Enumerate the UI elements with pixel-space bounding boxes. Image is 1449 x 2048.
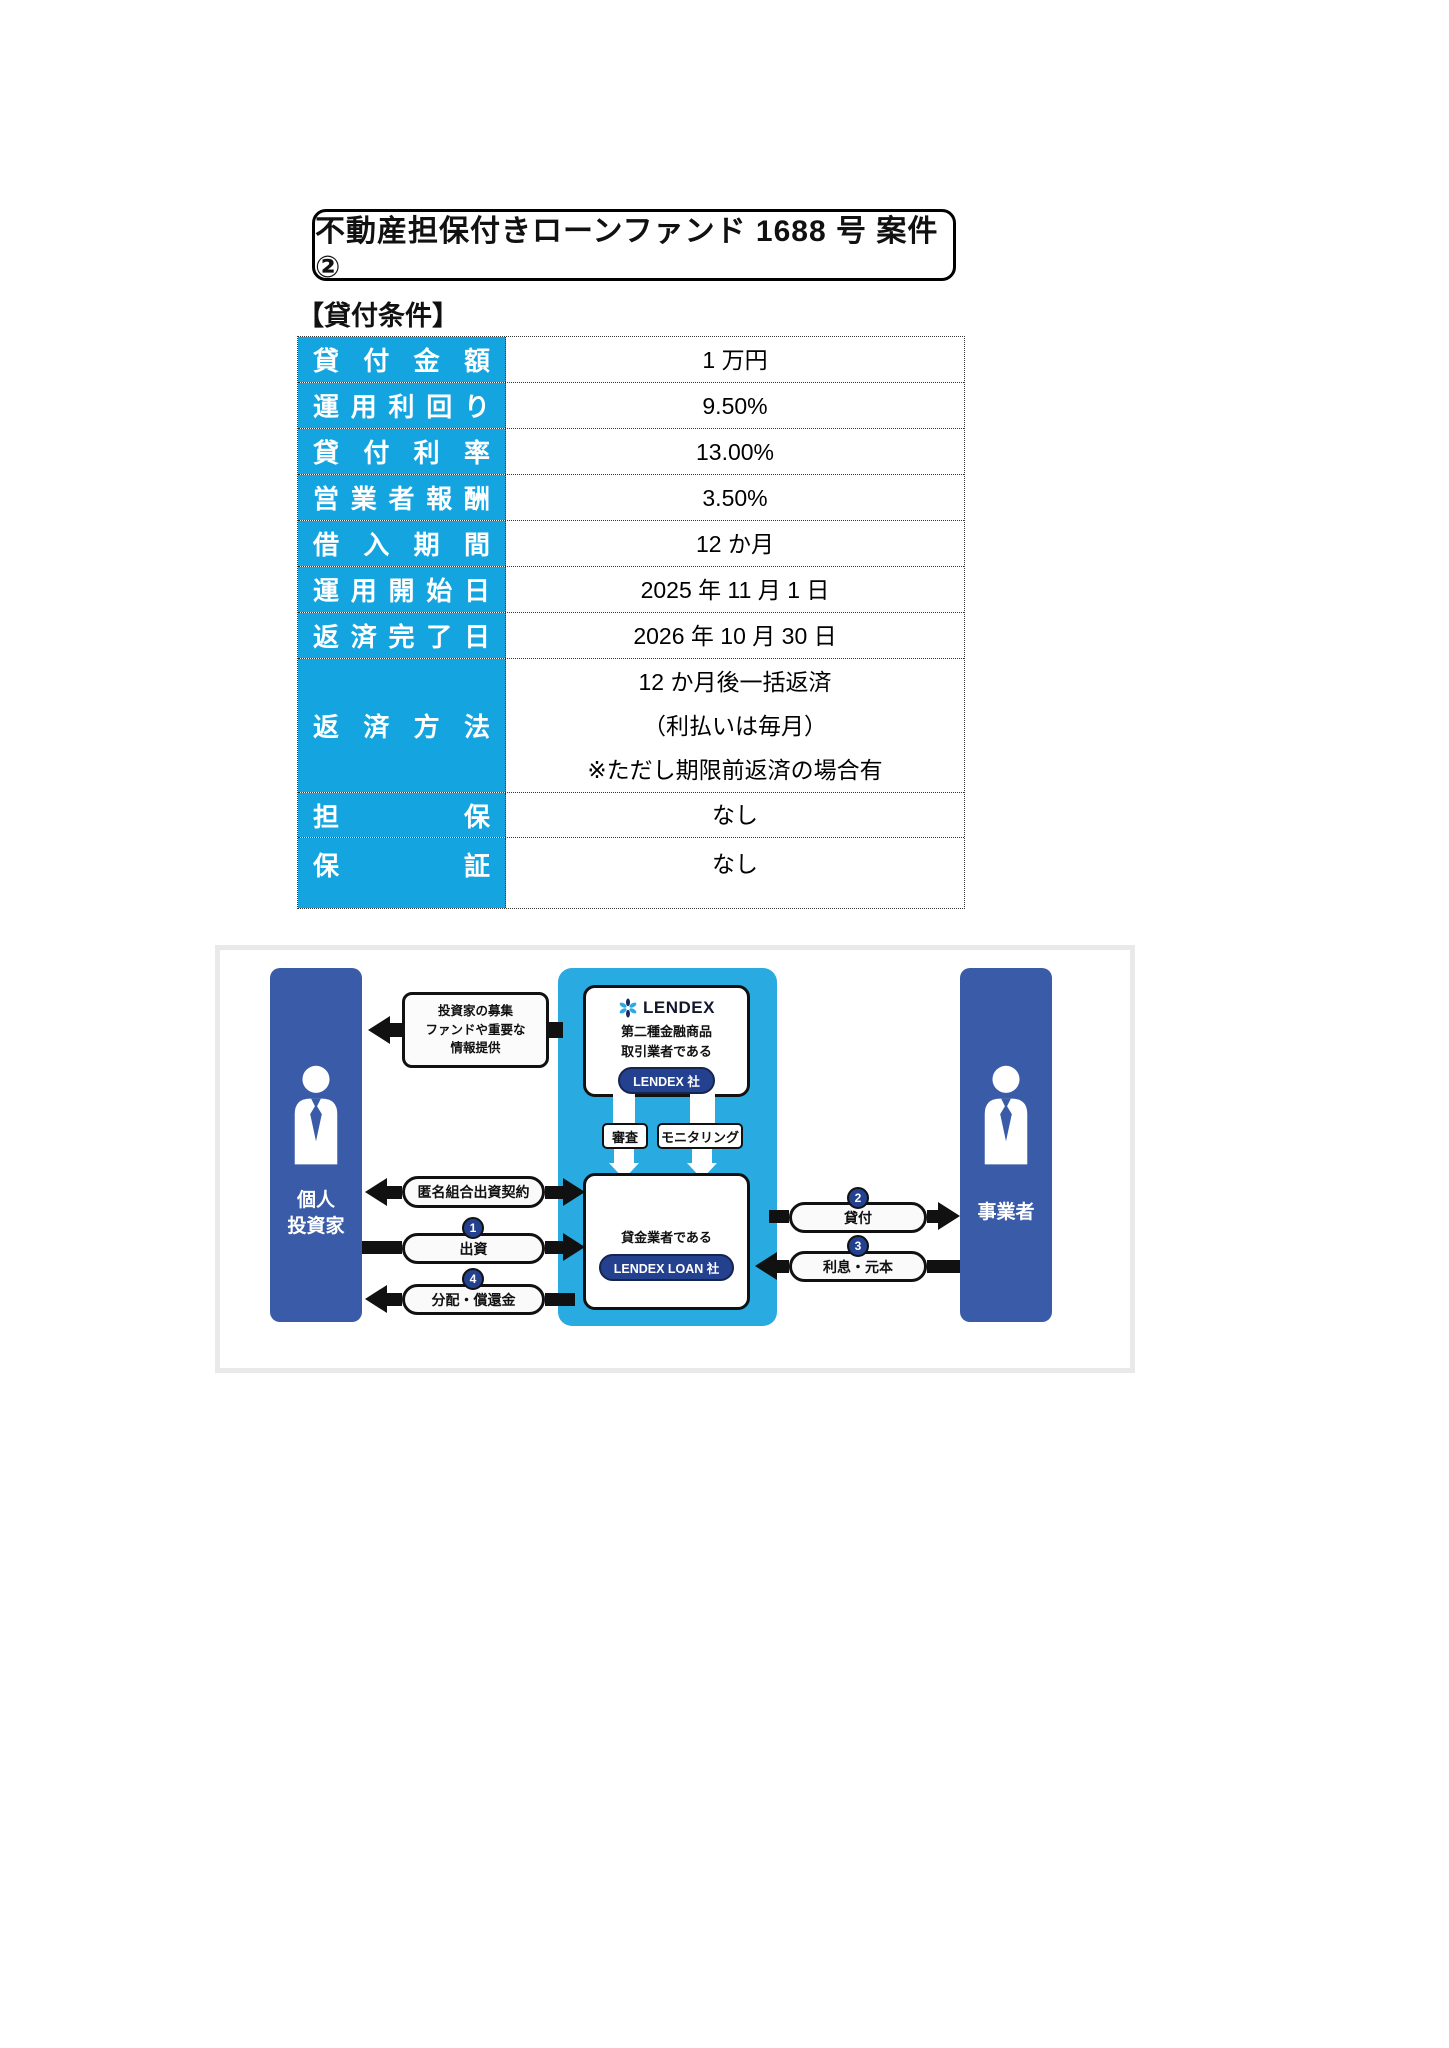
lendex-description: 第二種金融商品 取引業者である <box>586 1022 747 1061</box>
table-row: 貸付金額 1 万円 <box>298 337 964 383</box>
row-value: なし <box>506 793 964 837</box>
repayment-line-3: ※ただし期限前返済の場合有 <box>587 748 882 792</box>
borrower-person-icon <box>977 1063 1035 1173</box>
borrower-label: 事業者 <box>960 1200 1052 1226</box>
lendex-loan-box: 貸金業者である LENDEX LOAN 社 <box>583 1173 750 1310</box>
row-label: 運用開始日 <box>298 567 506 612</box>
arrow-shaft <box>927 1210 938 1223</box>
left-arrow-head-icon <box>755 1252 777 1280</box>
left-arrow-head-icon <box>368 1016 390 1044</box>
right-arrow-head-icon <box>563 1178 585 1206</box>
row-value: 3.50% <box>506 475 964 520</box>
screening-label: 審査 <box>602 1123 648 1149</box>
step-3-circle: 3 <box>847 1235 869 1257</box>
lendex-loan-badge: LENDEX LOAN 社 <box>599 1254 735 1281</box>
arrow-shaft <box>387 1186 402 1199</box>
table-row: 担保 なし <box>298 793 964 838</box>
table-row: 運用開始日 2025 年 11 月 1 日 <box>298 567 964 613</box>
row-label: 営業者報酬 <box>298 475 506 520</box>
arrow-shaft <box>362 1241 402 1254</box>
row-value: なし <box>506 838 964 908</box>
arrow-shaft <box>390 1023 402 1037</box>
investor-person-icon <box>287 1063 345 1173</box>
left-arrow-head-icon <box>365 1178 387 1206</box>
lendex-brand: LENDEX <box>643 998 715 1018</box>
down-arrow <box>614 1149 634 1163</box>
step-1-circle: 1 <box>462 1217 484 1239</box>
anonymous-contract-pill: 匿名組合出資契約 <box>402 1176 545 1208</box>
monitoring-label: モニタリング <box>657 1123 743 1149</box>
arrow-shaft <box>769 1210 789 1223</box>
right-arrow-head-icon <box>563 1233 585 1261</box>
arrow-shaft <box>927 1260 960 1273</box>
row-value: 9.50% <box>506 383 964 428</box>
investor-label: 個人 投資家 <box>270 1188 362 1239</box>
row-value: 12 か月後一括返済 （利払いは毎月） ※ただし期限前返済の場合有 <box>506 659 964 792</box>
table-row: 運用利回り 9.50% <box>298 383 964 429</box>
row-label: 担保 <box>298 793 506 837</box>
scheme-diagram: 個人 投資家 事業者 <box>215 945 1135 1373</box>
row-value: 12 か月 <box>506 521 964 566</box>
lendex-company-badge: LENDEX 社 <box>618 1067 715 1094</box>
arrow-shaft <box>545 1241 563 1254</box>
arrow-shaft <box>387 1293 402 1306</box>
repayment-line-2: （利払いは毎月） <box>643 704 827 748</box>
down-arrow <box>692 1149 712 1163</box>
row-value: 2026 年 10 月 30 日 <box>506 613 964 658</box>
loan-conditions-table: 貸付金額 1 万円 運用利回り 9.50% 貸付利率 13.00% 営業者報酬 … <box>297 336 965 909</box>
row-value: 1 万円 <box>506 337 964 382</box>
fund-title: 不動産担保付きローンファンド 1688 号 案件② <box>315 206 953 285</box>
row-value: 2025 年 11 月 1 日 <box>506 567 964 612</box>
row-label: 返済完了日 <box>298 613 506 658</box>
lendex-logo-row: LENDEX <box>586 998 747 1018</box>
right-arrow-head-icon <box>938 1202 960 1230</box>
section-heading: 【貸付条件】 <box>297 294 459 333</box>
row-label: 保証 <box>298 838 506 908</box>
arrow-shaft <box>545 1186 563 1199</box>
step-2-circle: 2 <box>847 1187 869 1209</box>
row-label: 貸付利率 <box>298 429 506 474</box>
lendex-loan-description: 貸金業者である <box>586 1228 747 1248</box>
table-row: 借入期間 12 か月 <box>298 521 964 567</box>
left-arrow-head-icon <box>365 1285 387 1313</box>
row-label: 運用利回り <box>298 383 506 428</box>
row-value: 13.00% <box>506 429 964 474</box>
repayment-line-1: 12 か月後一括返済 <box>639 660 832 704</box>
table-row: 保証 なし <box>298 838 964 908</box>
borrower-pillar: 事業者 <box>960 968 1052 1322</box>
investor-pillar: 個人 投資家 <box>270 968 362 1322</box>
arrow-shaft <box>777 1260 789 1273</box>
lendex-box: LENDEX 第二種金融商品 取引業者である LENDEX 社 <box>583 985 750 1097</box>
table-row: 営業者報酬 3.50% <box>298 475 964 521</box>
table-row: 返済完了日 2026 年 10 月 30 日 <box>298 613 964 659</box>
table-row: 貸付利率 13.00% <box>298 429 964 475</box>
connector-bar <box>690 1094 715 1124</box>
row-label: 借入期間 <box>298 521 506 566</box>
row-label: 貸付金額 <box>298 337 506 382</box>
row-label: 返済方法 <box>298 659 506 792</box>
arrow-shaft <box>545 1293 575 1306</box>
table-row: 返済方法 12 か月後一括返済 （利払いは毎月） ※ただし期限前返済の場合有 <box>298 659 964 793</box>
arrow-shaft <box>549 1022 563 1038</box>
fund-info-box: 投資家の募集 ファンドや重要な 情報提供 <box>402 992 549 1068</box>
connector-bar <box>613 1094 635 1124</box>
lendex-logo-icon <box>618 998 638 1018</box>
step-4-circle: 4 <box>462 1268 484 1290</box>
fund-title-box: 不動産担保付きローンファンド 1688 号 案件② <box>312 209 956 281</box>
